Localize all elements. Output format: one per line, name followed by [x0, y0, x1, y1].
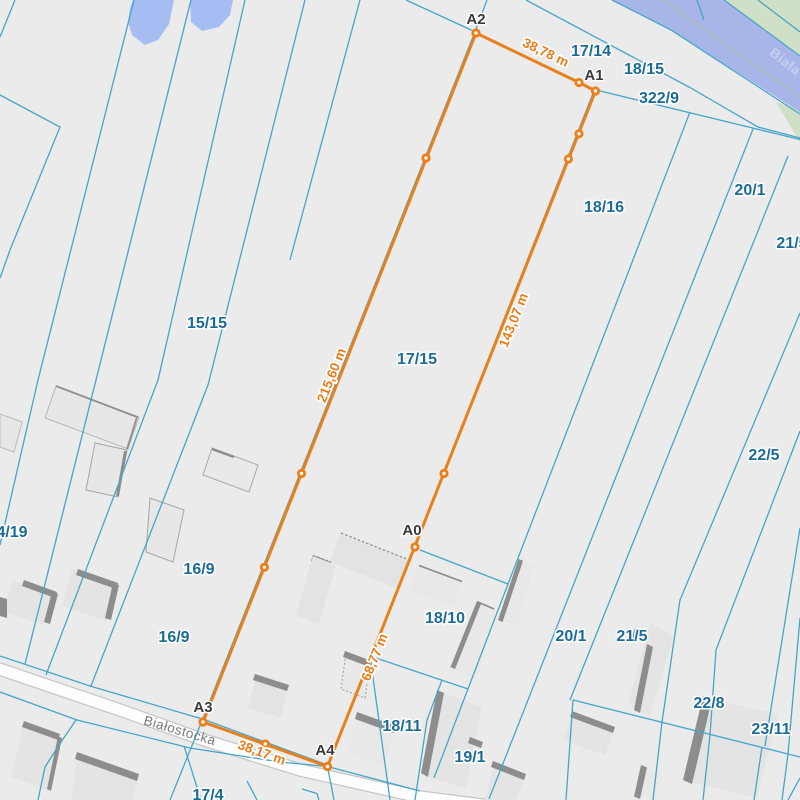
svg-text:322/9: 322/9: [639, 90, 679, 107]
svg-text:22/8: 22/8: [693, 695, 724, 712]
svg-text:16/9: 16/9: [183, 561, 214, 578]
svg-text:A0: A0: [402, 522, 421, 539]
svg-text:18/16: 18/16: [584, 199, 624, 216]
svg-text:22/5: 22/5: [748, 447, 779, 464]
svg-text:18/15: 18/15: [624, 61, 664, 78]
svg-text:17/14: 17/14: [571, 43, 611, 60]
svg-text:18/11: 18/11: [382, 718, 421, 735]
svg-text:23/11: 23/11: [751, 721, 790, 738]
svg-text:15/15: 15/15: [187, 315, 227, 332]
svg-text:A4: A4: [315, 742, 335, 759]
svg-text:4/19: 4/19: [0, 524, 28, 541]
svg-text:21/5: 21/5: [616, 628, 647, 645]
svg-text:17/15: 17/15: [397, 351, 437, 368]
svg-text:A2: A2: [466, 11, 485, 28]
svg-text:21/5: 21/5: [776, 235, 800, 252]
svg-text:19/1: 19/1: [454, 749, 485, 766]
svg-text:16/9: 16/9: [158, 629, 189, 646]
svg-text:20/1: 20/1: [734, 182, 765, 199]
svg-text:18/10: 18/10: [425, 610, 465, 627]
svg-text:A1: A1: [584, 67, 603, 84]
svg-text:A3: A3: [193, 699, 212, 716]
svg-text:20/1: 20/1: [555, 628, 586, 645]
svg-text:17/4: 17/4: [192, 787, 223, 800]
